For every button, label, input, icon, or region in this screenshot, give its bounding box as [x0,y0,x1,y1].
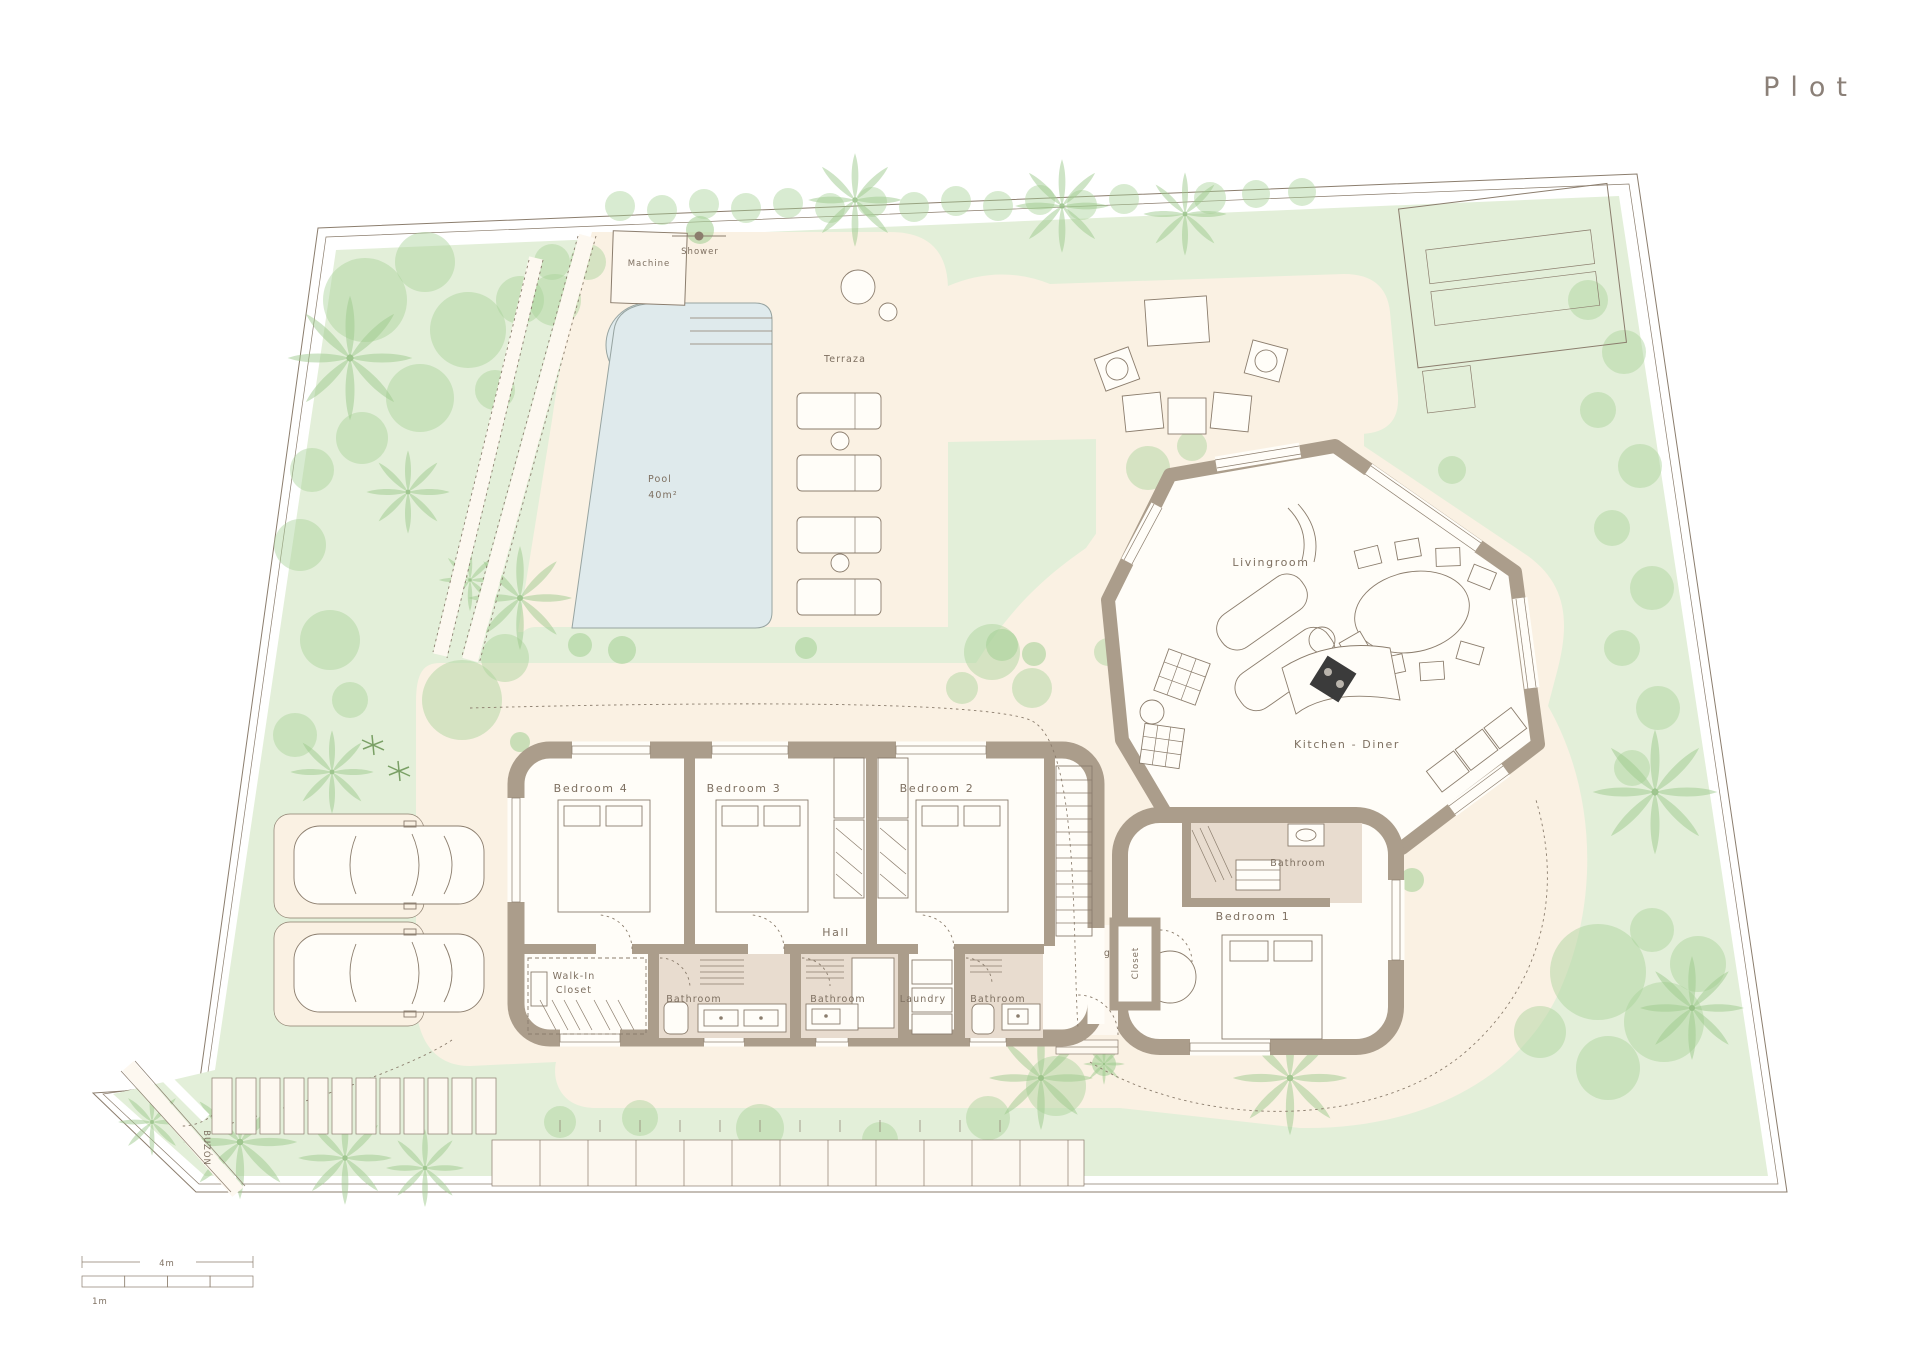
bedroom1-label: Bedroom 1 [1216,910,1291,923]
bedroom-wing: Bedroom 4 Bedroom 3 Bedroom 2 Hall Walk-… [512,746,1096,1042]
planter [879,303,897,321]
shower-label: Shower [681,247,719,257]
terrace-label: Terraza [823,354,866,365]
bed4 [558,800,650,912]
machine-label: Machine [628,259,671,269]
walk-in-closet-label-1: Walk-In [553,971,596,982]
page-title: Plot [1763,72,1858,103]
machine-room: Machine [611,231,687,306]
scale-minor-label: 1m [92,1297,108,1307]
pool-area-label: 40m² [648,490,678,501]
walk-in-closet-label-2: Closet [556,985,592,996]
bathroom-c-label: Bathroom [970,994,1025,1005]
bathroom-b-label: Bathroom [810,994,865,1005]
bed3 [716,800,808,912]
site-plan-drawing: Machine Shower Pool 40m² Terraza [0,0,1920,1357]
bedroom2-label: Bedroom 2 [900,782,975,795]
kitchen-label: Kitchen - Diner [1294,738,1400,751]
planter [841,270,875,304]
pool-label: Pool [648,474,672,485]
bedroom4-label: Bedroom 4 [554,782,629,795]
bed2 [916,800,1008,912]
scale-major-label: 4m [159,1259,175,1269]
livingroom-label: Livingroom [1232,556,1309,569]
scale-bar: 4m 1m [82,1256,253,1307]
bedroom3-label: Bedroom 3 [707,782,782,795]
plan-sheet: Machine Shower Pool 40m² Terraza [0,0,1920,1357]
bathroom-a-label: Bathroom [666,994,721,1005]
bed1 [1222,935,1322,1039]
bedroom1-suite: Bathroom Bedroom 1 [1120,815,1400,1051]
closet-label: Closet [1131,947,1141,980]
laundry-label: Laundry [900,994,946,1005]
mailbox-label: BUZÓN [201,1130,213,1166]
hall-label: Hall [822,926,850,939]
bathroom1-label: Bathroom [1270,858,1325,869]
